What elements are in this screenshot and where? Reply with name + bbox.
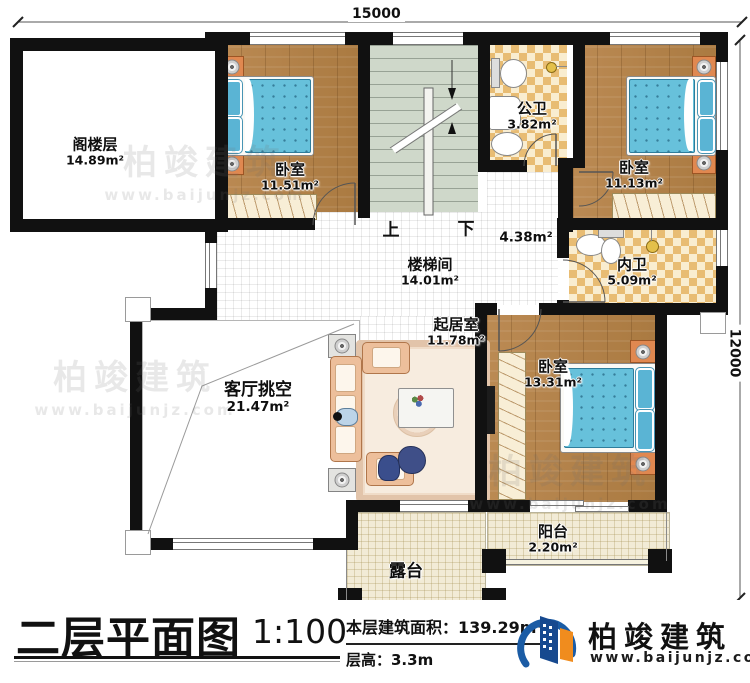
lamp-icon: [636, 344, 651, 359]
person-head: [333, 412, 342, 421]
room-label-bedroom1: 卧室 11.51m²: [261, 162, 319, 193]
wall: [130, 308, 142, 550]
balcony-edge: [666, 512, 667, 561]
wall: [557, 300, 569, 315]
window: [173, 538, 313, 550]
plant-icon: [398, 446, 426, 474]
person-figure: [378, 455, 400, 481]
wall: [475, 500, 530, 512]
attic-room: [10, 38, 228, 232]
room-label-terrace: 露台: [389, 562, 423, 581]
brand-logo-icon: [512, 604, 584, 676]
dimension-right: 12000: [726, 325, 742, 382]
side-table: [328, 334, 356, 358]
title-underline-thin: [14, 661, 340, 662]
pillow: [698, 117, 715, 153]
room-label-bedroom2: 卧室 11.13m²: [605, 160, 663, 191]
stairwell-floor: [370, 45, 478, 215]
wall: [478, 160, 527, 172]
lamp-icon: [697, 156, 712, 171]
balcony-floor: [487, 512, 670, 566]
brand-logo: 柏竣建筑 www.baijunjz.com: [512, 604, 748, 680]
room-label-ensuite-bath: 内卫 5.09m²: [607, 257, 656, 288]
pillow: [698, 80, 715, 117]
column-outline: [125, 530, 151, 555]
room-label-sitting: 起居室 11.78m²: [427, 317, 485, 348]
window: [716, 62, 728, 150]
wall: [557, 218, 728, 230]
pillar: [648, 549, 672, 573]
bath-accessory-icon: [546, 62, 557, 73]
stairs-down-label: 下: [458, 215, 475, 240]
floor-plan-page: 柏竣建筑 www.baijunjz.com 柏竣建筑 www.baijunjz.…: [0, 0, 750, 683]
title-underline: [14, 656, 340, 659]
lamp-icon: [636, 456, 651, 471]
wardrobe: [612, 193, 716, 219]
dimension-top: 15000: [348, 6, 405, 22]
sliding-door: [530, 500, 628, 512]
terrace-edge: [346, 550, 347, 607]
room-label-balcony: 阳台 2.20m²: [528, 524, 577, 555]
coffee-table: [398, 388, 454, 428]
sliding-door-panel: [575, 506, 629, 512]
sofa-cushion: [335, 426, 356, 454]
tv-icon: [487, 386, 495, 434]
window: [250, 32, 345, 45]
sink-icon: [491, 132, 523, 156]
pillow: [636, 368, 654, 410]
towel-bar: [556, 66, 567, 67]
sofa-cushion: [372, 347, 401, 368]
toilet-tank: [491, 58, 500, 88]
shower-arm: [651, 230, 652, 241]
wall: [655, 315, 667, 512]
room-label-public-bath: 公卫 3.82m²: [507, 101, 556, 132]
room-label-living-void: 客厅挑空 21.47m²: [224, 381, 292, 415]
room-label-stairwell: 楼梯间 14.01m²: [401, 257, 459, 288]
pillar: [482, 549, 506, 573]
lamp-icon: [335, 339, 350, 354]
bed-sheet: [684, 79, 693, 151]
nightstand: [692, 56, 716, 78]
nightstand: [630, 340, 656, 363]
wall: [628, 500, 667, 512]
column-outline: [125, 297, 151, 322]
window: [716, 230, 728, 266]
wall: [557, 230, 569, 258]
sofa-cushion: [335, 364, 356, 392]
window: [393, 32, 463, 45]
room-label-attic: 阁楼层 14.89m²: [66, 137, 124, 168]
single-sofa: [362, 342, 410, 374]
side-table: [328, 468, 356, 492]
pillow: [636, 410, 654, 451]
wall: [539, 303, 559, 315]
lamp-icon: [335, 473, 350, 488]
wall: [478, 38, 490, 162]
title-block: 二层平面图 1:100 本层建筑面积：139.29m² 层高：3.3m 柏竣建筑…: [0, 600, 750, 683]
wall: [358, 38, 370, 218]
balcony-railing: [506, 559, 648, 565]
nightstand: [630, 452, 656, 475]
table-flowers-icon: [410, 394, 426, 408]
toilet-tank: [598, 229, 624, 238]
window: [400, 500, 468, 512]
toilet-icon: [500, 59, 527, 88]
wardrobe: [498, 352, 526, 500]
window: [610, 32, 700, 45]
wardrobe: [219, 194, 317, 220]
wall: [573, 38, 585, 168]
room-label-bedroom3: 卧室 13.31m²: [524, 359, 582, 390]
column-outline: [700, 312, 726, 334]
mattress: [245, 79, 311, 153]
stairs-up-label: 上: [383, 216, 400, 241]
room-label-hall-area: 4.38m²: [499, 230, 552, 245]
plan-scale: 1:100: [252, 612, 347, 651]
shower-icon: [646, 240, 659, 253]
brand-url-text: www.baijunjz.com: [590, 650, 750, 666]
lamp-icon: [697, 60, 712, 75]
window: [205, 243, 217, 288]
